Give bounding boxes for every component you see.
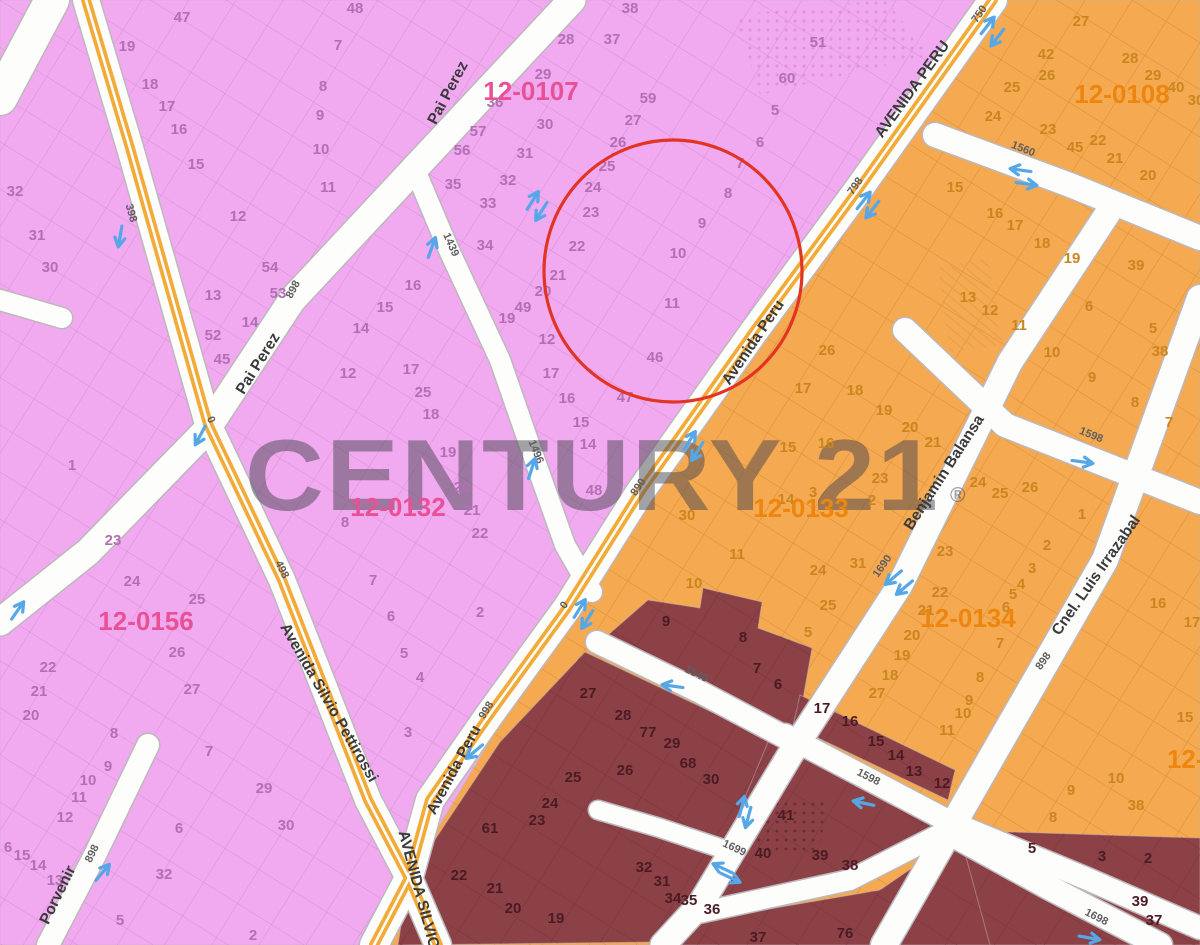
parcel-number: 7 [205, 743, 213, 760]
parcel-number: 16 [842, 713, 859, 730]
parcel-number: 9 [698, 215, 706, 232]
parcel-number: 6 [774, 676, 782, 693]
parcel-number: 8 [110, 725, 118, 742]
parcel-number: 32 [156, 866, 173, 883]
parcel-number: 34 [665, 890, 682, 907]
parcel-number: 34 [477, 237, 494, 254]
cadastral-map[interactable]: CENTURY 21 ® 398089814391496498998890079… [0, 0, 1200, 945]
parcel-number: 26 [1022, 479, 1039, 496]
parcel-number: 3 [1028, 560, 1036, 577]
parcel-number: 76 [837, 925, 854, 942]
parcel-number: 18 [423, 406, 440, 423]
parcel-number: 16 [405, 277, 422, 294]
parcel-number: 38 [842, 857, 859, 874]
parcel-number: 53 [270, 285, 287, 302]
parcel-number: 24 [542, 795, 559, 812]
parcel-number: 11 [664, 295, 680, 312]
parcel-number: 10 [80, 772, 97, 789]
parcel-number: 10 [670, 245, 687, 262]
parcel-number: 13 [960, 289, 977, 306]
parcel-number: 24 [970, 474, 987, 491]
parcel-number: 42 [1038, 46, 1055, 63]
parcel-number: 7 [1165, 414, 1173, 431]
parcel-number: 6 [4, 839, 12, 856]
parcel-number: 56 [454, 142, 471, 159]
parcel-number: 14 [30, 857, 47, 874]
parcel-number: 18 [847, 382, 864, 399]
parcel-number: 12 [230, 208, 247, 225]
parcel-number: 19 [894, 647, 911, 664]
parcel-number: 30 [703, 771, 720, 788]
parcel-number: 2 [249, 927, 257, 944]
parcel-number: 40 [755, 845, 772, 862]
parcel-number: 7 [753, 660, 761, 677]
parcel-number: 7 [996, 635, 1004, 652]
parcel-number: 17 [1007, 217, 1024, 234]
parcel-number: 12 [539, 331, 556, 348]
parcel-number: 48 [586, 482, 603, 499]
parcel-number: 10 [686, 575, 703, 592]
parcel-number: 24 [985, 108, 1002, 125]
parcel-number: 25 [565, 769, 582, 786]
parcel-number: 33 [480, 195, 497, 212]
parcel-number: 24 [585, 179, 602, 196]
parcel-number: 26 [1039, 67, 1056, 84]
map-canvas: CENTURY 21 ® 398089814391496498998890079… [0, 0, 1200, 945]
zone-code-label: 12-0134 [920, 603, 1016, 633]
parcel-number: 25 [1004, 79, 1021, 96]
zone-code-label: 12-0107 [483, 76, 578, 106]
parcel-number: 32 [7, 183, 24, 200]
parcel-number: 19 [1064, 250, 1081, 267]
parcel-number: 15 [947, 179, 964, 196]
parcel-number: 5 [400, 645, 408, 662]
parcel-number: 8 [1049, 809, 1057, 826]
parcel-number: 21 [550, 267, 567, 284]
parcel-number: 35 [681, 892, 698, 909]
parcel-number: 11 [729, 546, 745, 563]
parcel-number: 26 [617, 762, 634, 779]
parcel-number: 11 [1011, 317, 1027, 334]
parcel-number: 23 [529, 812, 546, 829]
parcel-number: 9 [662, 613, 670, 630]
parcel-number: 15 [868, 733, 885, 750]
parcel-number: 37 [604, 31, 621, 48]
parcel-number: 16 [171, 121, 188, 138]
parcel-number: 28 [615, 707, 632, 724]
parcel-number: 6 [387, 608, 395, 625]
parcel-number: 8 [341, 514, 349, 531]
parcel-number: 77 [640, 724, 657, 741]
parcel-number: 31 [29, 227, 46, 244]
parcel-number: 20 [454, 479, 471, 496]
parcel-number: 60 [779, 70, 796, 87]
parcel-number: 19 [440, 444, 457, 461]
zone-code-label: 12-0 [1167, 744, 1200, 774]
parcel-number: 31 [517, 145, 534, 162]
parcel-number: 9 [316, 107, 324, 124]
zone-code-label: 12-0132 [350, 492, 445, 522]
parcel-number: 41 [778, 807, 795, 824]
parcel-number: 17 [1184, 614, 1200, 631]
parcel-number: 10 [1108, 770, 1125, 787]
parcel-number: 5 [1149, 320, 1157, 337]
parcel-number: 2 [1043, 537, 1051, 554]
parcel-number: 30 [537, 116, 554, 133]
parcel-number: 11 [939, 722, 955, 739]
parcel-number: 17 [795, 380, 812, 397]
parcel-number: 16 [1150, 595, 1167, 612]
parcel-number: 27 [1073, 13, 1090, 30]
parcel-number: 30 [679, 507, 696, 524]
parcel-number: 20 [1140, 167, 1157, 184]
parcel-number: 17 [403, 361, 420, 378]
parcel-number: 27 [580, 685, 597, 702]
parcel-number: 14 [242, 314, 259, 331]
parcel-number: 11 [320, 179, 336, 196]
parcel-number: 20 [904, 627, 921, 644]
parcel-number: 30 [1188, 92, 1200, 109]
parcel-number: 38 [622, 0, 639, 17]
parcel-number: 24 [810, 562, 827, 579]
parcel-number: 18 [142, 76, 159, 93]
parcel-number: 22 [569, 238, 586, 255]
parcel-number: 5 [771, 102, 779, 119]
parcel-number: 17 [159, 98, 176, 115]
parcel-number: 26 [819, 342, 836, 359]
parcel-number: 18 [882, 667, 899, 684]
parcel-number: 27 [869, 685, 886, 702]
parcel-number: 25 [415, 384, 432, 401]
parcel-number: 23 [937, 543, 954, 560]
registered-trademark-icon: ® [950, 484, 966, 507]
parcel-number: 32 [500, 172, 517, 189]
parcel-number: 14 [580, 436, 597, 453]
parcel-number: 8 [724, 185, 732, 202]
parcel-number: 5 [116, 912, 124, 929]
parcel-number: 28 [558, 31, 575, 48]
parcel-number: 40 [1168, 79, 1185, 96]
parcel-number: 23 [105, 532, 122, 549]
parcel-number: 31 [654, 873, 671, 890]
parcel-number: 46 [647, 349, 664, 366]
parcel-number: 5 [1028, 840, 1036, 857]
parcel-number: 29 [664, 735, 681, 752]
parcel-number: 9 [1088, 369, 1096, 386]
parcel-number: 30 [42, 259, 59, 276]
parcel-number: 28 [1122, 50, 1139, 67]
zone-code-label: 12-0156 [98, 606, 193, 636]
parcel-number: 23 [583, 204, 600, 221]
parcel-number: 13 [906, 763, 923, 780]
parcel-number: 19 [876, 402, 893, 419]
parcel-number: 8 [976, 669, 984, 686]
parcel-number: 37 [1146, 912, 1163, 929]
parcel-number: 21 [487, 880, 504, 897]
parcel-number: 20 [23, 707, 40, 724]
parcel-number: 22 [472, 525, 489, 542]
parcel-number: 9 [1067, 782, 1075, 799]
parcel-number: 14 [888, 747, 905, 764]
parcel-number: 6 [756, 134, 764, 151]
parcel-number: 14 [353, 320, 370, 337]
parcel-number: 25 [820, 597, 837, 614]
parcel-number: 27 [625, 112, 642, 129]
parcel-number: 23 [1040, 121, 1057, 138]
parcel-number: 59 [640, 90, 657, 107]
zone-code-label: 12-0133 [753, 493, 848, 523]
parcel-number: 12 [934, 775, 951, 792]
parcel-number: 48 [347, 0, 364, 17]
parcel-number: 36 [704, 901, 721, 918]
parcel-number: 8 [319, 78, 327, 95]
parcel-number: 27 [184, 681, 201, 698]
parcel-number: 10 [955, 705, 972, 722]
parcel-number: 15 [1177, 709, 1194, 726]
parcel-number: 57 [470, 123, 487, 140]
parcel-number: 12 [57, 809, 74, 826]
parcel-number: 25 [992, 485, 1009, 502]
parcel-number: 19 [548, 910, 565, 927]
parcel-number: 16 [987, 205, 1004, 222]
parcel-number: 6 [175, 820, 183, 837]
parcel-number: 10 [1044, 344, 1061, 361]
parcel-number: 5 [804, 624, 812, 641]
parcel-number: 51 [810, 34, 827, 51]
parcel-number: 3 [404, 724, 412, 741]
parcel-number: 2 [868, 492, 876, 509]
parcel-number: 19 [499, 310, 516, 327]
parcel-number: 26 [169, 644, 186, 661]
parcel-number: 1 [1078, 506, 1086, 523]
parcel-number: 17 [543, 365, 560, 382]
parcel-number: 61 [482, 820, 499, 837]
parcel-number: 29 [256, 780, 273, 797]
parcel-number: 24 [124, 573, 141, 590]
parcel-number: 15 [573, 414, 590, 431]
parcel-number: 4 [1017, 576, 1026, 593]
parcel-number: 2 [476, 604, 484, 621]
parcel-number: 12 [340, 365, 357, 382]
parcel-number: 10 [313, 141, 330, 158]
parcel-number: 21 [925, 434, 942, 451]
parcel-number: 22 [40, 659, 57, 676]
parcel-number: 12 [982, 302, 999, 319]
parcel-number: 22 [932, 584, 949, 601]
parcel-number: 45 [214, 351, 231, 368]
parcel-number: 47 [174, 9, 191, 26]
parcel-number: 15 [14, 847, 31, 864]
parcel-number: 30 [278, 817, 295, 834]
parcel-number: 8 [739, 629, 747, 646]
parcel-number: 15 [188, 156, 205, 173]
parcel-number: 39 [1128, 257, 1145, 274]
zone-code-label: 12-0108 [1074, 79, 1169, 109]
parcel-number: 23 [872, 470, 889, 487]
parcel-number: 19 [119, 38, 136, 55]
parcel-number: 39 [1132, 893, 1149, 910]
parcel-number: 17 [814, 700, 831, 717]
parcel-number: 4 [416, 669, 425, 686]
parcel-number: 21 [31, 683, 48, 700]
parcel-number: 7 [369, 572, 377, 589]
parcel-number: 31 [850, 555, 867, 572]
parcel-number: 16 [818, 435, 835, 452]
parcel-number: 37 [750, 929, 767, 945]
parcel-number: 3 [1098, 848, 1106, 865]
parcel-number: 9 [104, 758, 112, 775]
parcel-number: 6 [1085, 298, 1093, 315]
parcel-number: 1 [68, 457, 76, 474]
parcel-number: 35 [445, 176, 462, 193]
parcel-number: 7 [334, 37, 342, 54]
parcel-number: 11 [71, 789, 87, 806]
parcel-number: 22 [1090, 132, 1107, 149]
parcel-number: 45 [1067, 139, 1084, 156]
parcel-number: 39 [812, 847, 829, 864]
parcel-number: 20 [535, 283, 552, 300]
parcel-number: 68 [680, 755, 697, 772]
parcel-number: 20 [902, 419, 919, 436]
parcel-number: 54 [262, 259, 279, 276]
parcel-number: 32 [636, 859, 653, 876]
parcel-number: 21 [464, 502, 481, 519]
parcel-number: 52 [205, 327, 222, 344]
parcel-number: 20 [505, 900, 522, 917]
parcel-number: 13 [205, 287, 222, 304]
parcel-number: 22 [451, 867, 468, 884]
parcel-number: 2 [1144, 850, 1152, 867]
parcel-number: 18 [1034, 235, 1051, 252]
parcel-number: 15 [780, 439, 797, 456]
parcel-number: 15 [377, 299, 394, 316]
parcel-number: 16 [559, 390, 576, 407]
parcel-number: 8 [1131, 394, 1139, 411]
parcel-number: 38 [1152, 343, 1169, 360]
parcel-number: 21 [1107, 150, 1124, 167]
parcel-number: 38 [1128, 797, 1145, 814]
parcel-number: 49 [515, 299, 532, 316]
